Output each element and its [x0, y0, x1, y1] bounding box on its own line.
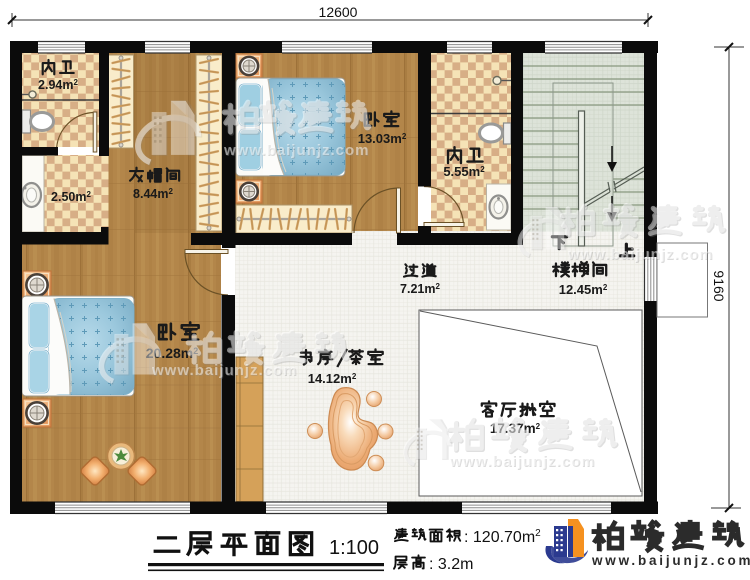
svg-text:www.baijunjz.com: www.baijunjz.com [151, 362, 297, 379]
svg-text:www.baijunjz.com: www.baijunjz.com [449, 453, 595, 470]
svg-text:2.50m2: 2.50m2 [51, 190, 91, 204]
svg-text:www.baijunjz.com: www.baijunjz.com [223, 142, 369, 159]
svg-text:9160: 9160 [711, 270, 727, 301]
svg-text:1:100: 1:100 [329, 537, 379, 559]
svg-text:5.55m2: 5.55m2 [443, 164, 485, 179]
svg-text:14.12m2: 14.12m2 [308, 371, 357, 386]
svg-text:12600: 12600 [319, 4, 358, 20]
svg-text:www.baijunjz.com: www.baijunjz.com [567, 246, 713, 263]
svg-text:2.94m2: 2.94m2 [38, 78, 78, 92]
svg-text:www.baijunjz.com: www.baijunjz.com [591, 553, 750, 568]
svg-text:7.21m2: 7.21m2 [400, 282, 440, 296]
svg-text:8.44m2: 8.44m2 [133, 187, 173, 201]
svg-text:12.45m2: 12.45m2 [559, 282, 608, 297]
svg-text:: 3.2m: : 3.2m [429, 556, 473, 573]
svg-text:: 120.70m2: : 120.70m2 [464, 528, 541, 546]
